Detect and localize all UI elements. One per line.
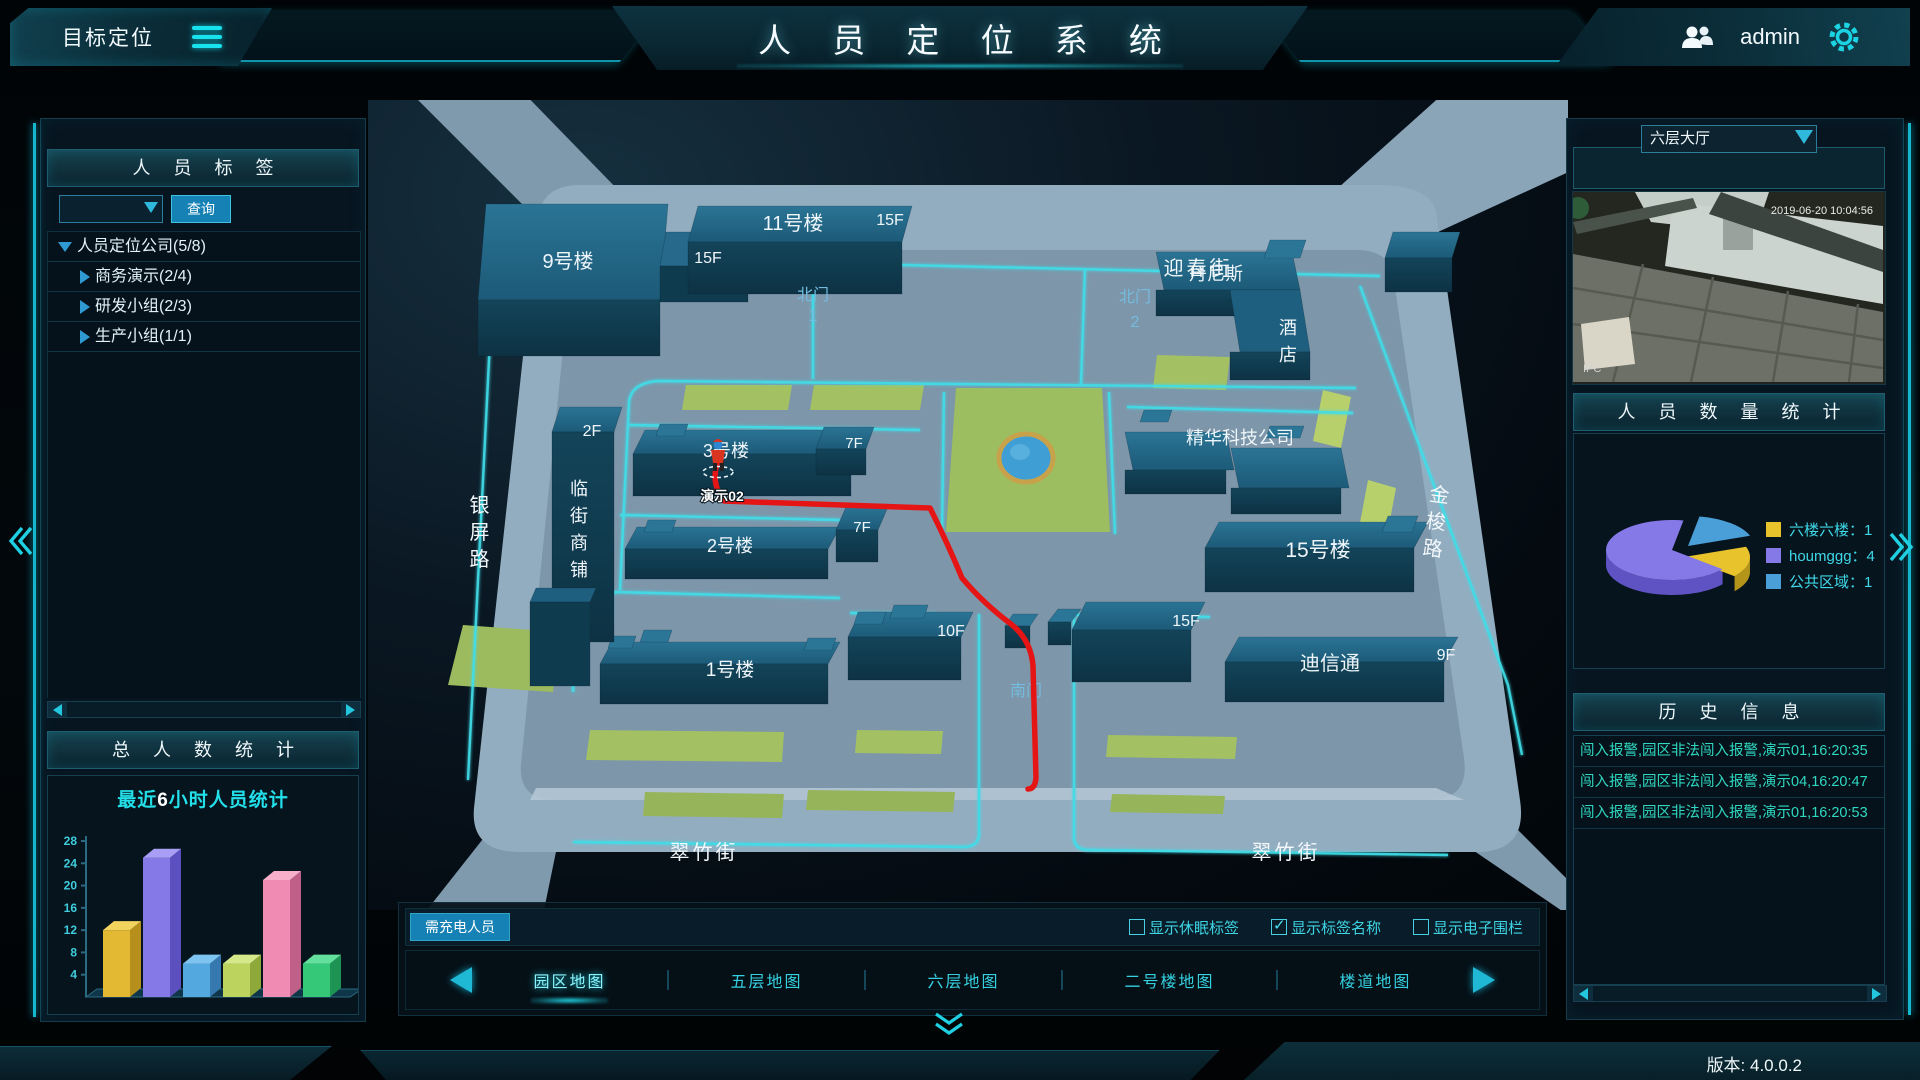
legend-swatch	[1766, 522, 1781, 537]
tag-filter-dropdown[interactable]	[59, 195, 163, 223]
floor-label-2: 7F	[853, 519, 871, 536]
personnel-tags-panel: 人 员 标 签 查询 人员定位公司(5/8) 商务演示(2/4) 研发小组(2/…	[40, 118, 366, 1022]
tab-floor6-map[interactable]: 六层地图	[917, 962, 1009, 998]
svg-text:28: 28	[64, 834, 78, 848]
camera-watermark: IPC	[1583, 363, 1601, 375]
tree-collapse-icon	[80, 270, 90, 284]
history-list: 闯入报警,园区非法闯入报警,演示01,16:20:35 闯入报警,园区非法闯入报…	[1573, 735, 1885, 985]
legend-swatch	[1766, 548, 1781, 563]
tab-floor5-map[interactable]: 五层地图	[720, 962, 812, 998]
history-item[interactable]: 闯入报警,园区非法闯入报警,演示04,16:20:47	[1574, 767, 1884, 798]
chevron-down-icon	[144, 202, 158, 213]
gear-icon[interactable]	[1826, 19, 1862, 55]
tree-node-rd-group[interactable]: 研发小组(2/3)	[48, 292, 360, 322]
tab-separator	[667, 970, 669, 990]
tabs-next-arrow[interactable]	[1473, 967, 1495, 993]
bar-chart: 481216202428	[48, 814, 359, 1014]
floor-label-11: 15F	[876, 212, 904, 229]
building-label-3: 3号楼	[703, 441, 749, 461]
personnel-tree: 人员定位公司(5/8) 商务演示(2/4) 研发小组(2/3) 生产小组(1/1…	[47, 231, 361, 698]
checkbox-icon	[1271, 919, 1287, 935]
tab-campus-map[interactable]: 园区地图	[523, 962, 615, 998]
floor-label-dixintong: 9F	[1437, 647, 1456, 664]
header-decoration-right	[1260, 10, 1611, 62]
query-button[interactable]: 查询	[171, 195, 231, 223]
campus-map[interactable]: 9号楼 15F 11号楼 15F 丹尼斯 酒店 精华科技公司 15号楼 迪信通 …	[368, 100, 1568, 910]
svg-text:16: 16	[64, 901, 78, 915]
street-label-cuizhu-left: 翠竹街	[670, 841, 739, 864]
svg-text:24: 24	[64, 856, 78, 870]
history-item[interactable]: 闯入报警,园区非法闯入报警,演示01,16:20:53	[1574, 798, 1884, 829]
camera-select-bar	[1573, 147, 1885, 189]
building-label-2: 2号楼	[707, 536, 753, 556]
app-window: 目标定位 人 员 定 位 系 统 admin 人 员 标 签 查询 人员定位公司…	[0, 0, 1920, 1080]
hourly-stats-chart: 最近6小时人员统计 481216202428	[47, 775, 359, 1015]
gate-num-north2: 2	[1131, 314, 1140, 331]
tree-horizontal-scrollbar[interactable]	[47, 701, 361, 718]
footer-decoration-left	[0, 1046, 332, 1080]
legend-item: houmggg：4	[1766, 542, 1875, 568]
version-label: 版本: 4.0.0.2	[1707, 1051, 1802, 1076]
monitoring-panel: 六层大厅 2019-06-20 10:04:56 IPC	[1566, 118, 1904, 1020]
tree-node-business-demo[interactable]: 商务演示(2/4)	[48, 262, 360, 292]
building-label-dixintong: 迪信通	[1300, 652, 1360, 675]
tree-expand-icon	[58, 242, 72, 252]
tabs-prev-arrow[interactable]	[450, 967, 472, 993]
building-label-11: 11号楼	[763, 212, 824, 235]
tab-separator	[1061, 970, 1063, 990]
tab-corridor-map[interactable]: 楼道地图	[1329, 962, 1421, 998]
scroll-right-button[interactable]	[341, 702, 360, 717]
checkbox-show-tag-names[interactable]: 显示标签名称	[1271, 917, 1381, 938]
hamburger-icon[interactable]	[192, 26, 222, 48]
gate-label-south: 南门	[1010, 682, 1042, 700]
legend-label: 公共区域：1	[1789, 571, 1872, 592]
building-label-1: 1号楼	[706, 659, 755, 681]
header-decoration-left	[220, 10, 661, 62]
tab-building2-map[interactable]: 二号楼地图	[1114, 962, 1224, 998]
header-left-block: 目标定位	[10, 8, 272, 66]
svg-text:20: 20	[64, 879, 78, 893]
pie-chart	[1574, 434, 1774, 668]
legend-item: 六楼六楼：1	[1766, 516, 1875, 542]
collapse-left-panel-chevron[interactable]	[4, 524, 34, 558]
camera-feed: 2019-06-20 10:04:56 IPC	[1572, 191, 1886, 385]
page-title: 人 员 定 位 系 统	[742, 14, 1178, 62]
footer-decoration-center	[346, 1050, 1234, 1080]
header-right-block: admin	[1556, 8, 1910, 66]
expand-right-panel-chevron[interactable]	[1888, 530, 1918, 564]
tree-node-production-group[interactable]: 生产小组(1/1)	[48, 322, 360, 352]
gate-num-north1: 1	[809, 308, 818, 325]
footer-right-block: 版本: 4.0.0.2	[1244, 1042, 1920, 1080]
pie-legend: 六楼六楼：1houmggg：4公共区域：1	[1766, 516, 1875, 594]
floor-label-3: 7F	[845, 435, 863, 452]
legend-label: 六楼六楼：1	[1789, 519, 1872, 540]
street-label-yinping: 银屏路	[470, 494, 493, 571]
count-stats-header: 人 员 数 量 统 计	[1573, 393, 1885, 431]
header-center-block: 人 员 定 位 系 统	[612, 6, 1308, 70]
double-chevron-down-icon[interactable]	[930, 1012, 968, 1036]
legend-item: 公共区域：1	[1766, 568, 1875, 594]
scroll-right-button[interactable]	[1867, 986, 1886, 1001]
legend-swatch	[1766, 574, 1781, 589]
history-horizontal-scrollbar[interactable]	[1573, 985, 1887, 1002]
checkbox-icon	[1129, 919, 1145, 935]
map-control-bar: 需充电人员 显示休眠标签 显示标签名称 显示电子围栏 园区地图 五	[398, 902, 1547, 1016]
tree-collapse-icon	[80, 330, 90, 344]
tab-separator	[864, 970, 866, 990]
camera-timestamp: 2019-06-20 10:04:56	[1771, 205, 1873, 217]
checkbox-icon	[1413, 919, 1429, 935]
total-count-header: 总 人 数 统 计	[47, 731, 359, 769]
tree-collapse-icon	[80, 300, 90, 314]
camera-location-dropdown[interactable]: 六层大厅	[1641, 125, 1817, 153]
scroll-left-button[interactable]	[1574, 986, 1593, 1001]
scroll-left-button[interactable]	[48, 702, 67, 717]
count-stats-chart: 六楼六楼：1houmggg：4公共区域：1	[1573, 433, 1885, 669]
tree-node-company[interactable]: 人员定位公司(5/8)	[48, 232, 360, 262]
users-icon	[1680, 24, 1714, 50]
history-header: 历 史 信 息	[1573, 693, 1885, 731]
building-label-jinghua: 精华科技公司	[1186, 428, 1294, 448]
building-label-15: 15号楼	[1285, 539, 1350, 562]
chevron-down-icon	[1795, 130, 1813, 144]
app-title: 目标定位	[62, 22, 154, 52]
floor-label-9: 15F	[694, 250, 722, 267]
svg-text:4: 4	[70, 968, 77, 982]
svg-text:12: 12	[64, 923, 78, 937]
tab-separator	[1276, 970, 1278, 990]
bar-chart-title: 最近6小时人员统计	[48, 785, 358, 812]
tags-panel-header: 人 员 标 签	[47, 149, 359, 187]
svg-text:8: 8	[70, 945, 77, 959]
scrollbar-track[interactable]	[67, 702, 341, 717]
checkbox-show-fences[interactable]: 显示电子围栏	[1413, 917, 1523, 938]
floor-label-shop: 2F	[583, 423, 602, 440]
floor-label-10: 10F	[937, 623, 965, 640]
floor-label-center: 15F	[1172, 613, 1200, 630]
legend-label: houmggg：4	[1789, 545, 1875, 566]
street-label-yingchun: 迎春街	[1164, 257, 1233, 280]
gate-label-north2: 北门	[1119, 288, 1151, 306]
person-tag-label: 演示02	[700, 488, 744, 504]
logged-in-user[interactable]: admin	[1740, 24, 1800, 50]
building-label-9: 9号楼	[542, 250, 593, 273]
street-label-cuizhu-right: 翠竹街	[1252, 841, 1321, 864]
scrollbar-track[interactable]	[1593, 986, 1867, 1001]
checkbox-show-sleep-tags[interactable]: 显示休眠标签	[1129, 917, 1239, 938]
history-item[interactable]: 闯入报警,园区非法闯入报警,演示01,16:20:35	[1574, 736, 1884, 767]
gate-label-north1: 北门	[797, 286, 829, 304]
need-charge-button[interactable]: 需充电人员	[410, 913, 510, 941]
